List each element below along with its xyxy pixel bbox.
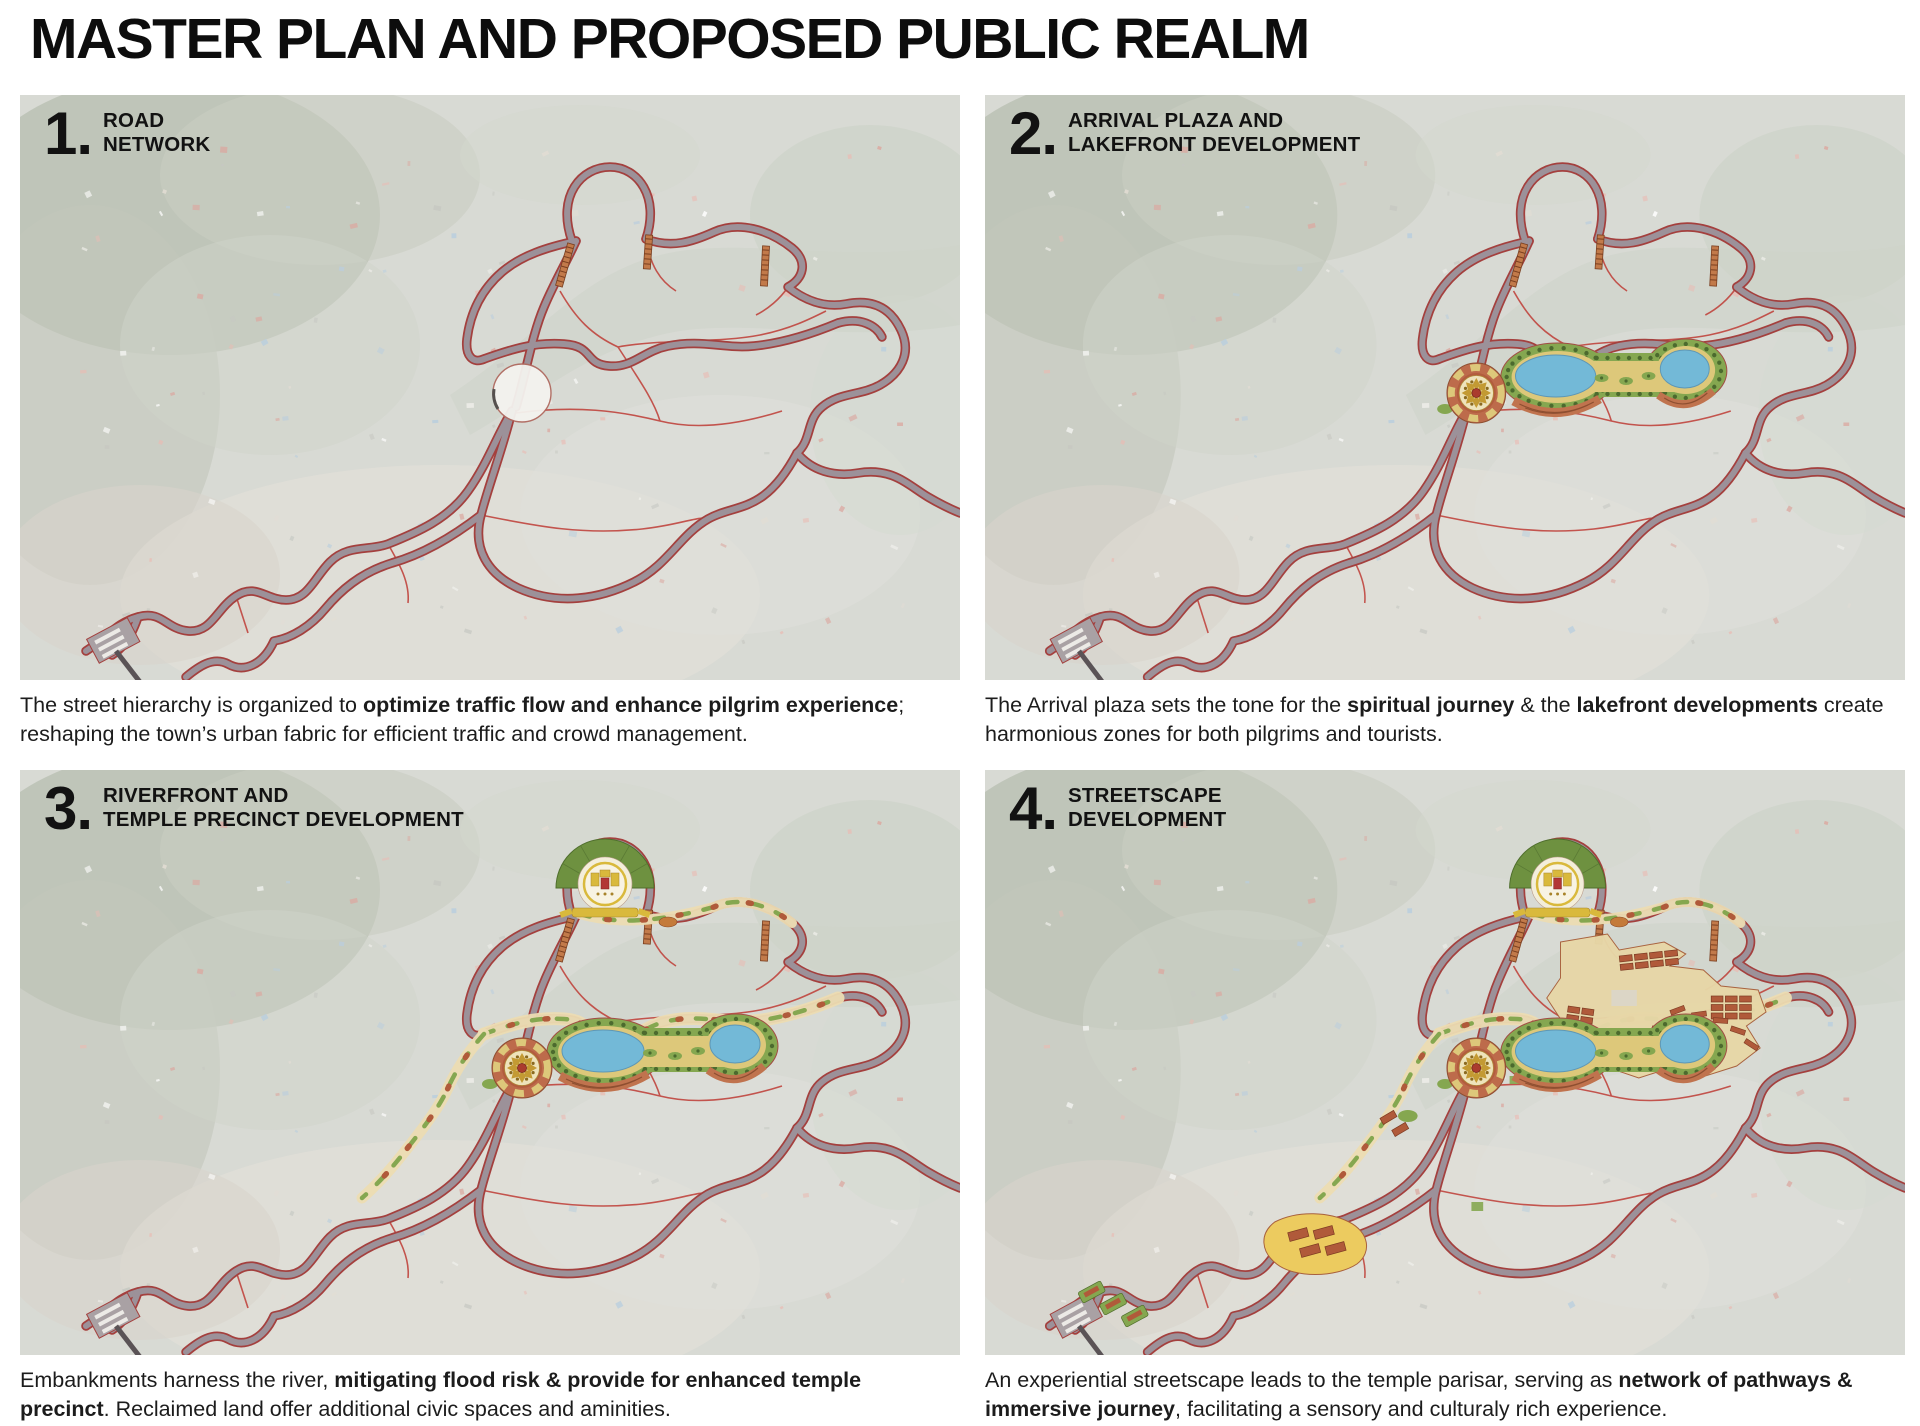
- panel-title: ARRIVAL PLAZA AND LAKEFRONT DEVELOPMENT: [1068, 109, 1360, 158]
- panel-title: STREETSCAPE DEVELOPMENT: [1068, 784, 1226, 833]
- panel-number: 2.: [1009, 111, 1057, 158]
- panel-heading: 3. RIVERFRONT AND TEMPLE PRECINCT DEVELO…: [44, 784, 464, 833]
- panel-caption: Embankments harness the river, mitigatin…: [20, 1355, 925, 1426]
- panel-streetscape: 4. STREETSCAPE DEVELOPMENT An experienti…: [985, 770, 1905, 1426]
- panel-number: 1.: [44, 111, 92, 158]
- roundabout-circle: [493, 364, 551, 422]
- satellite-base-layer: [985, 95, 1905, 680]
- panel-riverfront-temple: 3. RIVERFRONT AND TEMPLE PRECINCT DEVELO…: [20, 770, 960, 1426]
- panel-road-network: 1. ROAD NETWORK The street hierarchy is …: [20, 95, 960, 770]
- map-riverfront-temple: 3. RIVERFRONT AND TEMPLE PRECINCT DEVELO…: [20, 770, 960, 1355]
- panel-heading: 2. ARRIVAL PLAZA AND LAKEFRONT DEVELOPME…: [1009, 109, 1360, 158]
- arrival-plaza-mandala: [492, 1038, 552, 1098]
- panel-title: ROAD NETWORK: [103, 109, 210, 158]
- page-title: MASTER PLAN AND PROPOSED PUBLIC REALM: [30, 6, 1309, 72]
- road-network-map-drawing: [20, 95, 960, 680]
- panel-number: 3.: [44, 786, 92, 833]
- panel-caption: The street hierarchy is organized to opt…: [20, 680, 925, 770]
- panel-heading: 1. ROAD NETWORK: [44, 109, 210, 158]
- master-plan-board: MASTER PLAN AND PROPOSED PUBLIC REALM 1.…: [0, 0, 1920, 1426]
- arrival-plaza-map-drawing: [985, 95, 1905, 680]
- panel-caption: The Arrival plaza sets the tone for the …: [985, 680, 1890, 770]
- arrival-plaza-mandala: [1447, 1038, 1506, 1098]
- panel-number: 4.: [1009, 786, 1057, 833]
- riverfront-map-drawing: [20, 770, 960, 1355]
- map-streetscape: 4. STREETSCAPE DEVELOPMENT: [985, 770, 1905, 1355]
- panels-grid: 1. ROAD NETWORK The street hierarchy is …: [20, 95, 1905, 1426]
- panel-title: RIVERFRONT AND TEMPLE PRECINCT DEVELOPME…: [103, 784, 464, 833]
- map-road-network: 1. ROAD NETWORK: [20, 95, 960, 680]
- arrival-plaza-mandala: [1447, 363, 1506, 423]
- map-arrival-plaza-lakefront: 2. ARRIVAL PLAZA AND LAKEFRONT DEVELOPME…: [985, 95, 1905, 680]
- panel-heading: 4. STREETSCAPE DEVELOPMENT: [1009, 784, 1226, 833]
- satellite-base-layer: [985, 770, 1905, 1355]
- satellite-base-layer: [20, 95, 960, 680]
- satellite-base-layer: [20, 770, 960, 1355]
- panel-arrival-plaza-lakefront: 2. ARRIVAL PLAZA AND LAKEFRONT DEVELOPME…: [985, 95, 1905, 770]
- streetscape-map-drawing: [985, 770, 1905, 1355]
- panel-caption: An experiential streetscape leads to the…: [985, 1355, 1890, 1426]
